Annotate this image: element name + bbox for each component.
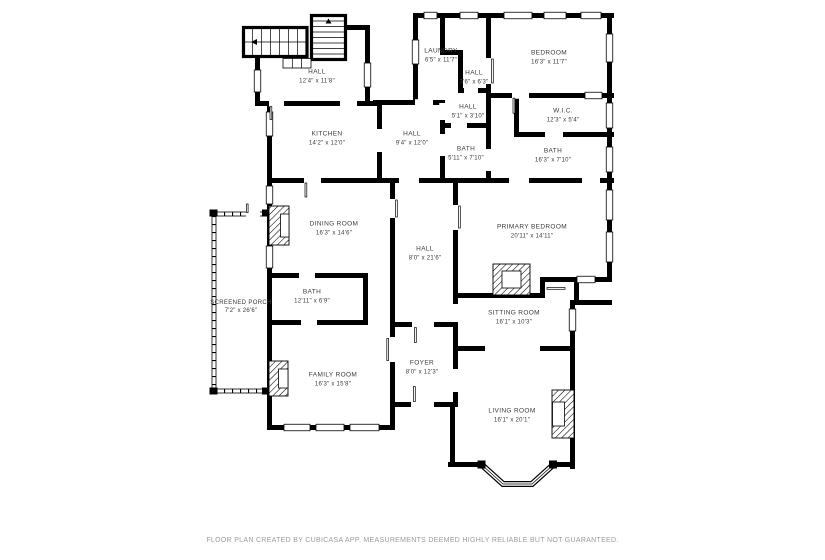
disclaimer-text: FLOOR PLAN CREATED BY CUBICASA APP. MEAS… [0,537,825,544]
door-leaves [270,59,565,402]
family-room-fireplace-icon [269,361,288,396]
bay-window [478,461,558,485]
floor-plan-drawing [0,0,825,560]
primary-bedroom-fireplace-icon [493,264,530,295]
windows [254,12,613,431]
door-openings [269,58,600,408]
dining-fireplace-icon [269,206,289,245]
living-room-fireplace-icon [552,390,574,438]
screened-porch-walls [210,204,271,395]
floor-plan-page: HALL 12'4" x 11'8" LAUNDRY 6'5" x 11'7" … [0,0,825,560]
